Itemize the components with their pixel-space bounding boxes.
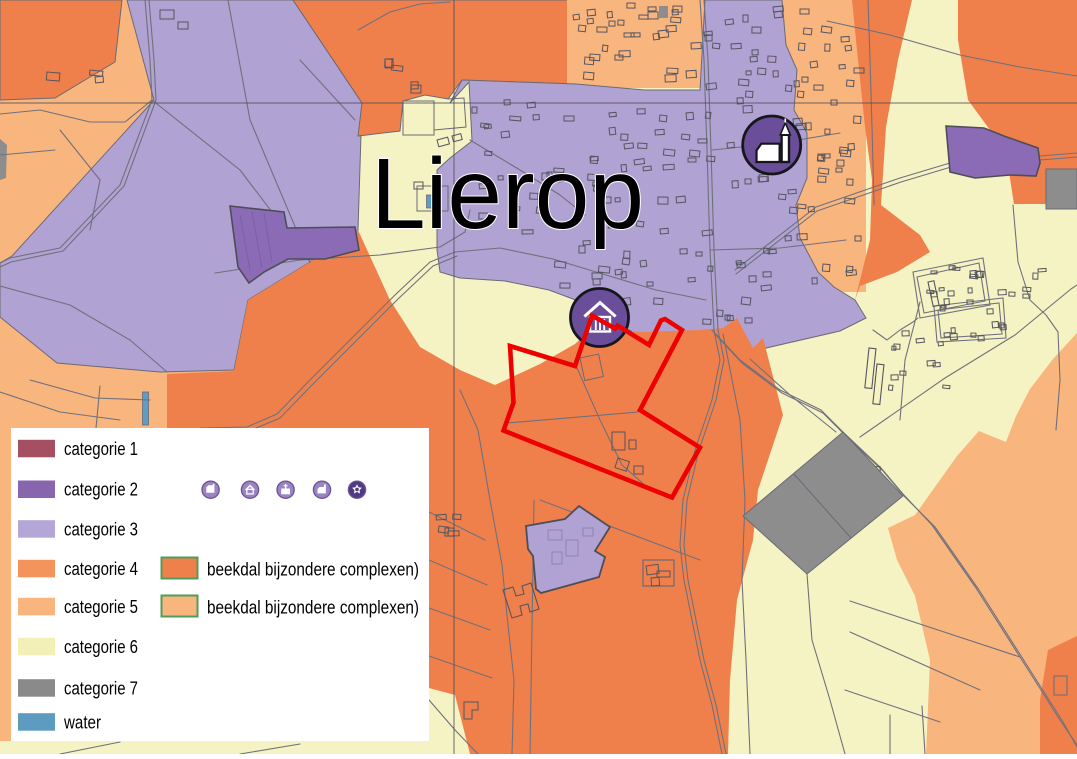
svg-text:categorie 4: categorie 4 bbox=[64, 559, 138, 579]
svg-text:categorie 6: categorie 6 bbox=[64, 637, 138, 657]
svg-text:water: water bbox=[63, 712, 101, 732]
svg-text:categorie 3: categorie 3 bbox=[64, 519, 138, 539]
svg-text:categorie 7: categorie 7 bbox=[64, 678, 138, 698]
svg-text:categorie 1: categorie 1 bbox=[64, 439, 138, 459]
svg-text:categorie 2: categorie 2 bbox=[64, 480, 138, 500]
svg-text:beekdal bijzondere complexen): beekdal bijzondere complexen) bbox=[207, 598, 419, 618]
svg-text:categorie 5: categorie 5 bbox=[64, 597, 138, 617]
svg-text:Lierop: Lierop bbox=[371, 138, 644, 250]
svg-text:beekdal bijzondere complexen): beekdal bijzondere complexen) bbox=[207, 560, 419, 580]
